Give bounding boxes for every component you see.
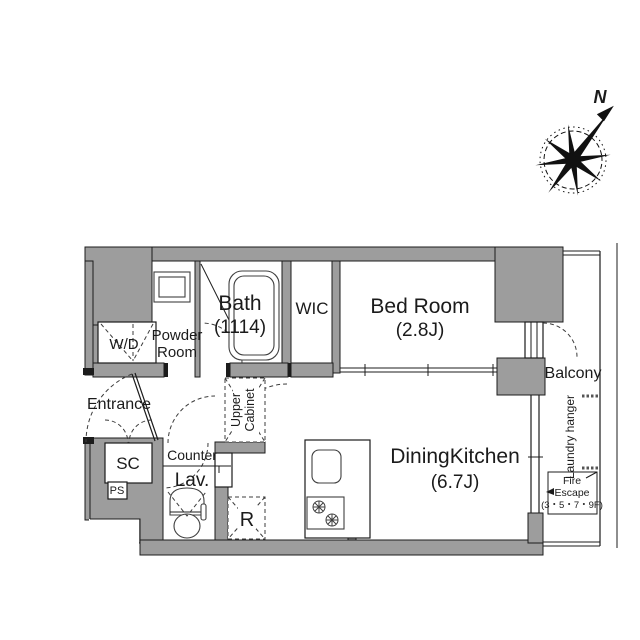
floor-plan-drawing: N Bath (1114) WIC Bed Room (2.8J) Powder… — [0, 0, 640, 640]
compass-rose: N — [529, 87, 626, 201]
bedroom-label: Bed Room — [370, 295, 469, 318]
washer-dryer-label: W/D — [109, 336, 138, 353]
fire-escape-label-3: (3・5・7・9F) — [541, 500, 603, 511]
fire-escape-label-2: Escape — [554, 487, 589, 499]
upper-cabinet-label-1: Upper — [229, 393, 243, 427]
balcony-door-swing — [543, 323, 577, 357]
wic-label: WIC — [295, 299, 328, 318]
floor-plan: N Bath (1114) WIC Bed Room (2.8J) Powder… — [0, 0, 640, 640]
compass-north-label: N — [594, 87, 608, 107]
stove-icon — [307, 497, 344, 529]
counter-label: Counter — [167, 447, 217, 463]
bedroom-size: (2.8J) — [396, 320, 445, 341]
kitchen-sink-icon — [312, 450, 341, 483]
lav-label: Lav. — [175, 470, 210, 491]
dining-kitchen-label: DiningKitchen — [390, 445, 520, 468]
bath-label: Bath — [218, 292, 261, 315]
lav-cabinet — [215, 453, 232, 487]
balcony-door — [525, 322, 543, 358]
dining-kitchen-size: (6.7J) — [431, 472, 480, 493]
entrance-label: Entrance — [87, 396, 151, 413]
refrigerator-label: R — [240, 509, 254, 531]
ps-label: PS — [110, 485, 125, 497]
sink-icon — [154, 272, 190, 302]
powder-room-label-1: Powder — [152, 327, 203, 344]
powder-room-label-2: Room — [157, 344, 197, 361]
laundry-hanger-label: Laundry hanger — [563, 395, 577, 479]
fire-escape-label-1: Fire — [563, 475, 581, 487]
toilet-icon — [168, 488, 206, 538]
bath-size: (1114) — [214, 317, 266, 338]
sc-label: SC — [116, 454, 140, 473]
upper-cabinet-label-2: Cabinet — [243, 388, 257, 432]
balcony-label: Balcony — [545, 365, 602, 382]
kitchen-counter — [305, 440, 370, 538]
